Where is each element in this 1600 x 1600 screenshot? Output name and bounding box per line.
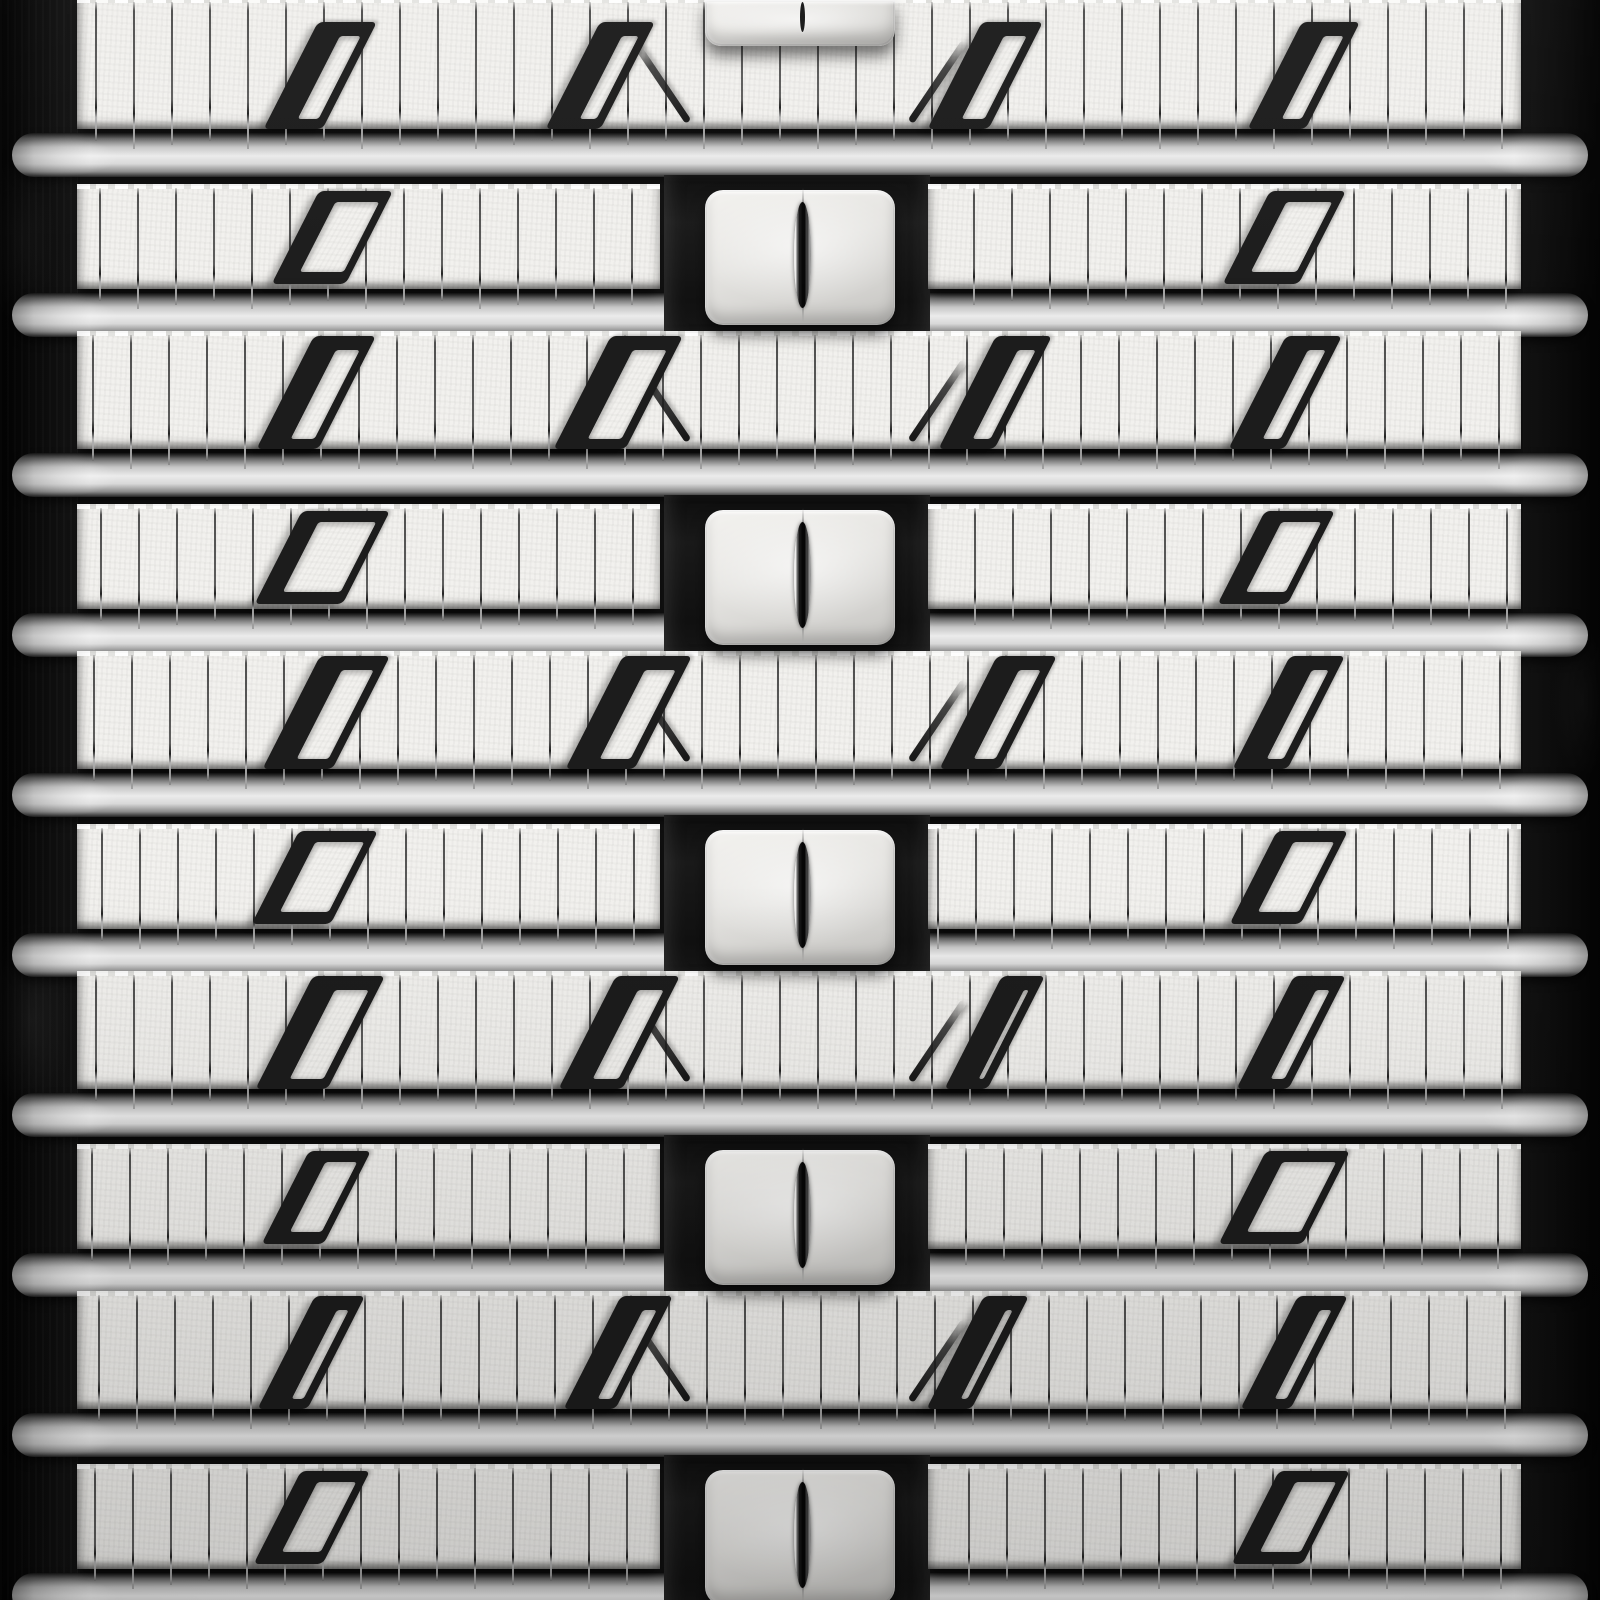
sipe-wire-line: [550, 1468, 552, 1581]
sipe-wire-line: [631, 188, 633, 305]
sipe-wire-line: [1463, 975, 1465, 1101]
sipe-wire-line: [1126, 508, 1128, 621]
sipe-wire-line: [132, 1468, 134, 1589]
sipe-wire-line: [1081, 655, 1083, 785]
sipe-wire-line: [1201, 188, 1203, 305]
sipe-wire-line: [738, 335, 740, 465]
sipe-wire-line: [1383, 1148, 1385, 1269]
sipe-wire-line: [1507, 828, 1509, 949]
sipe-wire-line: [1079, 1148, 1081, 1265]
sipe-wire-line: [1086, 1295, 1088, 1425]
sipe-wire-line: [554, 1295, 556, 1421]
drive-lug-slot-tip: [800, 2, 805, 32]
sipe-wire-line: [475, 975, 477, 1109]
tread-bar-edge: [12, 453, 1588, 497]
sipe-wire-line: [93, 655, 95, 781]
sipe-wire-line: [399, 2, 401, 145]
sipe-wire-line: [443, 828, 445, 941]
tread-bar-edge: [12, 773, 1588, 817]
sipe-wire-line: [1387, 2, 1389, 149]
sipe-wire-line: [177, 828, 179, 945]
sipe-wire-line: [95, 2, 97, 141]
sipe-wire-line: [511, 655, 513, 785]
sipe-wire-line: [1157, 655, 1159, 789]
sipe-wire-line: [1234, 1468, 1236, 1581]
sipe-wire-line: [1387, 975, 1389, 1109]
sipe-wire-line: [975, 828, 977, 945]
sipe-wire-line: [1348, 1468, 1350, 1581]
sipe-wire-line: [700, 335, 702, 469]
sipe-wire-line: [896, 1295, 898, 1421]
sipe-wire-line: [1506, 508, 1508, 629]
sipe-wire-line: [212, 1295, 214, 1421]
sipe-wire-line: [1155, 1148, 1157, 1269]
sipe-wire-line: [548, 335, 550, 461]
rubber-track-tread-photo: [0, 0, 1600, 1600]
sipe-wire-line: [1499, 655, 1501, 789]
sipe-wire-line: [1156, 335, 1158, 469]
sipe-wire-line: [167, 1148, 169, 1265]
sipe-wire-line: [510, 335, 512, 465]
sipe-wire-line: [1124, 1295, 1126, 1421]
sipe-wire-line: [855, 975, 857, 1105]
sipe-wire-line: [1080, 335, 1082, 465]
sipe-wire-line: [479, 188, 481, 309]
sipe-wire-line: [1195, 655, 1197, 785]
sipe-wire-line: [893, 975, 895, 1101]
sipe-wire-line: [1049, 188, 1051, 309]
sipe-wire-line: [214, 508, 216, 621]
sipe-wire-line: [1354, 508, 1356, 621]
sipe-wire-line: [782, 1295, 784, 1421]
sipe-wire-line: [99, 188, 101, 301]
sipe-wire-line: [1390, 1295, 1392, 1429]
sipe-wire-line: [138, 508, 140, 629]
sipe-wire-line: [1051, 828, 1053, 949]
sipe-wire-line: [1050, 508, 1052, 629]
sipe-wire-line: [474, 1468, 476, 1589]
sipe-wire-line: [397, 655, 399, 785]
sipe-wire-line: [404, 508, 406, 625]
sipe-wire-line: [92, 335, 94, 461]
sipe-wire-line: [206, 335, 208, 461]
sipe-wire-line: [436, 1468, 438, 1581]
sipe-wire-line: [1012, 508, 1014, 621]
sipe-wire-line: [133, 2, 135, 149]
sipe-wire-line: [815, 655, 817, 789]
sipe-wire-line: [434, 335, 436, 461]
sipe-wire-line: [1165, 828, 1167, 949]
sipe-wire-line: [1469, 828, 1471, 941]
sipe-wire-line: [1425, 975, 1427, 1105]
sipe-wire-line: [209, 2, 211, 141]
sipe-wire-line: [1461, 655, 1463, 781]
sipe-wire-line: [547, 1148, 549, 1261]
sipe-wire-line: [516, 1295, 518, 1425]
sipe-wire-line: [594, 508, 596, 629]
sipe-wire-line: [213, 188, 215, 301]
sipe-wire-line: [403, 188, 405, 305]
sipe-wire-line: [1241, 828, 1243, 941]
sipe-wire-line: [1048, 1295, 1050, 1429]
sipe-wire-line: [247, 975, 249, 1109]
drive-lug-slot: [794, 1162, 811, 1268]
sipe-wire-line: [1194, 335, 1196, 465]
sipe-wire-line: [1087, 188, 1089, 305]
sipe-wire-line: [1044, 1468, 1046, 1589]
sipe-wire-line: [739, 655, 741, 785]
sipe-wire-line: [1391, 188, 1393, 309]
sipe-wire-line: [1353, 188, 1355, 301]
sipe-wire-line: [170, 1468, 172, 1585]
sipe-wire-line: [98, 1295, 100, 1421]
sipe-wire-line: [1345, 1148, 1347, 1261]
sipe-wire-line: [1239, 188, 1241, 301]
sipe-wire-line: [968, 1468, 970, 1585]
sipe-wire-line: [1121, 2, 1123, 141]
sipe-wire-line: [706, 1295, 708, 1429]
sipe-wire-line: [668, 1295, 670, 1421]
sipe-wire-line: [1003, 1148, 1005, 1261]
sipe-wire-line: [820, 1295, 822, 1429]
sipe-wire-line: [245, 655, 247, 789]
sipe-wire-line: [208, 1468, 210, 1581]
sipe-wire-line: [779, 975, 781, 1101]
sipe-wire-line: [1045, 2, 1047, 149]
sipe-wire-line: [595, 828, 597, 949]
sipe-wire-line: [478, 1295, 480, 1429]
sipe-wire-line: [209, 975, 211, 1101]
tread-lug-face: [77, 1146, 660, 1249]
sipe-wire-line: [1463, 2, 1465, 141]
sipe-wire-line: [1158, 1468, 1160, 1589]
sipe-wire-line: [1384, 335, 1386, 469]
sipe-wire-line: [626, 1468, 628, 1585]
sipe-wire-line: [95, 975, 97, 1101]
sipe-wire-line: [1117, 1148, 1119, 1261]
sipe-wire-line: [585, 1148, 587, 1269]
sipe-wire-line: [398, 1468, 400, 1585]
sipe-wire-line: [175, 188, 177, 305]
sipe-wire-line: [623, 1148, 625, 1265]
sipe-wire-line: [973, 188, 975, 305]
sipe-wire-line: [137, 188, 139, 309]
sipe-wire-line: [1501, 2, 1503, 149]
sipe-wire-line: [1428, 1295, 1430, 1425]
sipe-wire-line: [364, 1295, 366, 1429]
sipe-wire-line: [215, 828, 217, 941]
sipe-wire-line: [247, 2, 249, 149]
sipe-wire-line: [1466, 1295, 1468, 1421]
sipe-wire-line: [1424, 1468, 1426, 1585]
sipe-wire-line: [473, 655, 475, 789]
sipe-wire-line: [1197, 975, 1199, 1105]
sipe-wire-line: [100, 508, 102, 621]
sipe-wire-line: [513, 2, 515, 145]
sipe-wire-line: [632, 508, 634, 625]
sipe-wire-line: [1164, 508, 1166, 629]
sipe-wire-line: [1042, 335, 1044, 469]
sipe-wire-line: [965, 1148, 967, 1265]
sipe-wire-line: [1430, 508, 1432, 625]
sipe-wire-line: [253, 828, 255, 949]
sipe-wire-line: [549, 655, 551, 781]
sipe-wire-line: [1423, 655, 1425, 785]
sipe-wire-line: [133, 975, 135, 1109]
sipe-wire-line: [244, 335, 246, 469]
sipe-wire-line: [1235, 975, 1237, 1101]
sipe-wire-line: [1011, 188, 1013, 301]
sipe-wire-line: [1392, 508, 1394, 629]
sipe-wire-line: [1045, 975, 1047, 1109]
sipe-wire-line: [588, 1468, 590, 1589]
sipe-wire-line: [169, 655, 171, 785]
sipe-wire-line: [557, 828, 559, 941]
sipe-wire-line: [937, 828, 939, 949]
sipe-wire-line: [1197, 2, 1199, 145]
sipe-wire-line: [744, 1295, 746, 1425]
sipe-wire-line: [817, 975, 819, 1109]
sipe-wire-line: [131, 655, 133, 789]
sipe-wire-line: [435, 655, 437, 781]
sipe-wire-line: [741, 975, 743, 1105]
sipe-wire-line: [405, 828, 407, 945]
drive-lug-slot: [794, 202, 811, 308]
sipe-wire-line: [551, 975, 553, 1101]
sipe-wire-line: [1467, 188, 1469, 301]
sipe-wire-line: [91, 1148, 93, 1261]
sipe-wire-line: [395, 1148, 397, 1265]
sipe-wire-line: [139, 828, 141, 949]
sipe-wire-line: [1352, 1295, 1354, 1421]
sipe-wire-line: [1231, 1148, 1233, 1261]
sipe-wire-line: [1386, 1468, 1388, 1589]
sipe-wire-line: [1118, 335, 1120, 461]
sipe-wire-line: [852, 335, 854, 465]
sipe-wire-line: [250, 1295, 252, 1429]
sipe-wire-line: [1425, 2, 1427, 145]
sipe-wire-line: [399, 975, 401, 1105]
sipe-wire-line: [246, 1468, 248, 1589]
sipe-wire-line: [481, 828, 483, 949]
sipe-wire-line: [1119, 655, 1121, 781]
sipe-wire-line: [1159, 975, 1161, 1109]
tread-lug-face: [928, 186, 1521, 289]
sipe-wire-line: [1462, 1468, 1464, 1581]
sipe-wire-line: [1501, 975, 1503, 1109]
sipe-wire-line: [205, 1148, 207, 1261]
sipe-wire-line: [555, 188, 557, 301]
sipe-wire-line: [858, 1295, 860, 1425]
sipe-wire-line: [929, 655, 931, 789]
sipe-wire-line: [251, 188, 253, 309]
sipe-wire-line: [509, 1148, 511, 1265]
sipe-wire-line: [928, 335, 930, 469]
sipe-wire-line: [1006, 1468, 1008, 1581]
sipe-wire-line: [472, 335, 474, 469]
sipe-wire-line: [437, 2, 439, 141]
sipe-wire-line: [890, 335, 892, 461]
sipe-wire-line: [1421, 1148, 1423, 1265]
sipe-wire-line: [1088, 508, 1090, 625]
sipe-wire-line: [513, 975, 515, 1105]
sipe-wire-line: [252, 508, 254, 629]
sipe-wire-line: [442, 508, 444, 621]
sipe-wire-line: [1041, 1148, 1043, 1269]
sipe-wire-line: [512, 1468, 514, 1585]
sipe-wire-line: [1127, 828, 1129, 941]
sipe-wire-line: [1349, 975, 1351, 1101]
sipe-wire-line: [1429, 188, 1431, 305]
sipe-wire-line: [94, 1468, 96, 1581]
sipe-wire-line: [1459, 1148, 1461, 1261]
drive-lug-slot: [794, 522, 811, 628]
sipe-wire-line: [1497, 1148, 1499, 1269]
sipe-wire-line: [243, 1148, 245, 1269]
sipe-wire-line: [1500, 1468, 1502, 1589]
sipe-wire-line: [440, 1295, 442, 1421]
sipe-wire-line: [1346, 335, 1348, 461]
sipe-wire-line: [1193, 1148, 1195, 1265]
sipe-wire-line: [1083, 975, 1085, 1105]
sipe-wire-line: [1159, 2, 1161, 149]
sipe-wire-line: [168, 335, 170, 465]
sipe-wire-line: [1235, 2, 1237, 141]
sipe-wire-line: [1203, 828, 1205, 945]
sipe-wire-line: [1422, 335, 1424, 465]
sipe-wire-line: [1163, 188, 1165, 309]
sipe-wire-line: [396, 335, 398, 465]
sipe-wire-line: [1162, 1295, 1164, 1429]
sipe-wire-line: [1468, 508, 1470, 621]
sipe-wire-line: [136, 1295, 138, 1429]
tread-lug-face: [928, 1466, 1521, 1569]
sipe-wire-line: [556, 508, 558, 621]
sipe-wire-line: [1196, 1468, 1198, 1585]
sipe-wire-line: [471, 1148, 473, 1269]
sipe-wire-line: [1393, 828, 1395, 949]
sipe-wire-line: [974, 508, 976, 625]
sipe-wire-line: [171, 975, 173, 1105]
sipe-wire-line: [480, 508, 482, 629]
sipe-wire-line: [701, 655, 703, 789]
drive-lug-slot: [794, 1482, 811, 1588]
sipe-wire-line: [777, 655, 779, 781]
sipe-wire-line: [633, 828, 635, 945]
sipe-wire-line: [1498, 335, 1500, 469]
sipe-wire-line: [402, 1295, 404, 1425]
sipe-wire-line: [1238, 1295, 1240, 1421]
sipe-wire-line: [703, 975, 705, 1109]
sipe-wire-line: [433, 1148, 435, 1261]
drive-lug-slot: [794, 842, 811, 948]
sipe-wire-line: [853, 655, 855, 785]
sipe-wire-line: [475, 2, 477, 149]
sipe-wire-line: [130, 335, 132, 469]
sipe-wire-line: [1385, 655, 1387, 789]
sipe-wire-line: [207, 655, 209, 781]
sipe-wire-line: [1505, 188, 1507, 309]
sipe-wire-line: [176, 508, 178, 625]
tread-lug-face: [77, 1466, 660, 1569]
sipe-wire-line: [441, 188, 443, 301]
sipe-wire-line: [129, 1148, 131, 1269]
sipe-wire-line: [593, 188, 595, 309]
sipe-wire-line: [101, 828, 103, 941]
sipe-wire-line: [1013, 828, 1015, 941]
sipe-wire-line: [1083, 2, 1085, 145]
sipe-wire-line: [519, 828, 521, 945]
sipe-wire-line: [518, 508, 520, 625]
sipe-wire-line: [891, 655, 893, 781]
sipe-wire-line: [517, 188, 519, 305]
sipe-wire-line: [437, 975, 439, 1101]
sipe-wire-line: [1355, 828, 1357, 941]
sipe-wire-line: [1460, 335, 1462, 461]
sipe-wire-line: [665, 2, 667, 141]
sipe-wire-line: [776, 335, 778, 461]
sipe-wire-line: [171, 2, 173, 145]
sipe-wire-line: [1431, 828, 1433, 945]
sipe-wire-line: [1082, 1468, 1084, 1585]
sipe-wire-line: [814, 335, 816, 469]
sipe-wire-line: [1125, 188, 1127, 301]
sipe-wire-line: [1121, 975, 1123, 1101]
sipe-wire-line: [1202, 508, 1204, 625]
sipe-wire-line: [1504, 1295, 1506, 1429]
sipe-wire-line: [1347, 655, 1349, 781]
sipe-wire-line: [1200, 1295, 1202, 1425]
sipe-wire-line: [1089, 828, 1091, 945]
sipe-wire-line: [174, 1295, 176, 1425]
sipe-wire-line: [1120, 1468, 1122, 1581]
